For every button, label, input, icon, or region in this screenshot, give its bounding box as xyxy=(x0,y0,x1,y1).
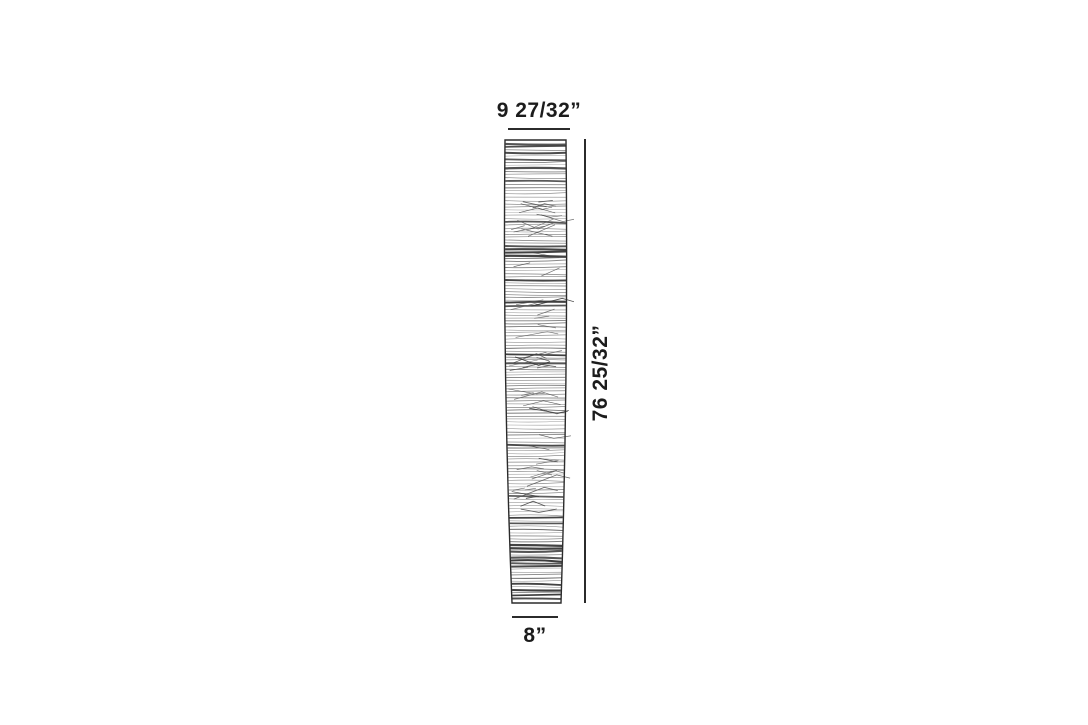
lamp-texture-stroke xyxy=(511,563,561,564)
lamp-texture-stroke xyxy=(506,153,566,154)
lamp-texture-stroke xyxy=(508,459,564,461)
lamp-texture-stroke xyxy=(505,222,566,224)
lamp-texture-stroke xyxy=(506,385,565,386)
lamp-texture-stroke xyxy=(505,292,566,293)
lamp-texture-stroke xyxy=(506,326,566,327)
lamp-texture-stroke xyxy=(505,315,566,316)
lamp-texture-stroke xyxy=(507,432,564,433)
top-width-label: 9 27/32” xyxy=(459,99,619,123)
lamp-texture-stroke xyxy=(505,257,566,258)
lamp-texture-stroke xyxy=(505,168,565,169)
lamp-texture-stroke xyxy=(512,587,561,588)
lamp-texture-stroke xyxy=(507,394,566,395)
lamp-texture-stroke xyxy=(506,374,565,375)
lamp-texture-stroke xyxy=(507,419,565,420)
lamp-texture-stroke xyxy=(508,455,564,456)
lamp-texture-stroke xyxy=(511,568,561,569)
lamp-texture-stroke xyxy=(514,263,531,267)
lamp-texture-stroke xyxy=(507,406,565,407)
lamp-texture-stroke xyxy=(505,249,566,250)
lamp-texture-stroke xyxy=(505,178,565,179)
floor-lamp-illustration xyxy=(498,136,574,608)
lamp-texture-stroke xyxy=(505,201,566,202)
lamp-texture-stroke xyxy=(508,450,565,451)
lamp-texture-stroke xyxy=(505,306,566,307)
lamp-texture-stroke xyxy=(505,155,565,156)
lamp-texture-stroke xyxy=(510,545,562,546)
lamp-texture-stroke xyxy=(507,404,565,405)
lamp-texture-stroke xyxy=(510,521,563,522)
lamp-texture-stroke xyxy=(505,276,566,277)
height-label: 76 25/32” xyxy=(588,303,614,443)
lamp-texture-stroke xyxy=(505,256,566,257)
lamp-texture-stroke xyxy=(506,332,566,333)
dimension-diagram: 9 27/32” 76 25/32” 8” xyxy=(0,0,1088,725)
lamp-texture-stroke xyxy=(505,300,566,301)
lamp-texture-stroke xyxy=(510,526,563,527)
lamp-texture-stroke xyxy=(505,181,566,182)
lamp-texture-stroke xyxy=(505,193,566,194)
lamp-texture-stroke xyxy=(506,323,566,324)
lamp-texture-stroke xyxy=(505,312,566,313)
lamp-texture-stroke xyxy=(506,330,566,331)
lamp-texture-stroke xyxy=(506,383,565,384)
lamp-texture-stroke xyxy=(512,578,562,579)
lamp-texture-stroke xyxy=(505,269,566,270)
lamp-texture-stroke xyxy=(506,338,566,339)
lamp-texture-stroke xyxy=(507,442,564,443)
lamp-texture-stroke xyxy=(505,295,566,296)
lamp-texture-stroke xyxy=(505,283,566,284)
lamp-texture-stroke xyxy=(506,144,566,145)
lamp-texture-stroke xyxy=(507,400,565,401)
lamp-texture-stroke xyxy=(509,505,563,506)
lamp-texture-stroke xyxy=(505,240,566,241)
lamp-texture-stroke xyxy=(505,264,566,265)
lamp-texture-stroke xyxy=(512,595,560,596)
lamp-texture-stroke xyxy=(506,391,565,392)
lamp-texture-stroke xyxy=(505,234,566,235)
lamp-texture-stroke xyxy=(505,297,566,298)
lamp-texture-stroke xyxy=(512,574,562,575)
lamp-texture-stroke xyxy=(507,429,564,430)
lamp-texture-stroke xyxy=(512,584,561,585)
top-width-dim-line xyxy=(508,128,570,130)
lamp-texture-stroke xyxy=(509,515,563,516)
height-dim-line xyxy=(584,139,586,603)
lamp-texture-stroke xyxy=(508,480,563,481)
lamp-texture-stroke xyxy=(505,164,565,165)
lamp-texture-stroke xyxy=(511,555,562,556)
lamp-texture-stroke xyxy=(507,421,565,422)
lamp-texture-stroke xyxy=(510,539,562,540)
bottom-width-dim-line xyxy=(512,616,558,618)
lamp-texture-stroke xyxy=(511,551,562,552)
lamp-texture-stroke xyxy=(511,557,562,558)
bottom-width-label: 8” xyxy=(475,624,595,648)
lamp-texture-stroke xyxy=(505,174,565,175)
lamp-texture-stroke xyxy=(506,367,566,368)
lamp-texture-stroke xyxy=(505,215,566,216)
lamp-texture-stroke xyxy=(510,529,563,530)
lamp-texture-stroke xyxy=(509,499,563,500)
lamp-texture-stroke xyxy=(508,469,564,470)
lamp-texture-stroke xyxy=(511,566,561,567)
lamp-texture-stroke xyxy=(505,209,566,210)
lamp-texture-stroke xyxy=(506,150,566,151)
lamp-texture-stroke xyxy=(510,517,563,518)
lamp-texture-stroke xyxy=(506,357,566,358)
lamp-texture-stroke xyxy=(506,335,566,336)
lamp-texture-stroke xyxy=(505,252,566,253)
lamp-texture-stroke xyxy=(505,280,566,281)
lamp-texture-stroke xyxy=(505,246,566,247)
lamp-texture-stroke xyxy=(506,342,566,343)
lamp-texture-stroke xyxy=(523,401,560,406)
lamp-texture-stroke xyxy=(508,453,565,454)
lamp-texture-stroke xyxy=(506,146,566,147)
lamp-texture-stroke xyxy=(512,580,561,581)
lamp-texture-stroke xyxy=(506,388,565,389)
lamp-texture-stroke xyxy=(510,532,562,533)
lamp-texture-stroke xyxy=(505,302,566,303)
lamp-texture-stroke xyxy=(505,162,565,163)
lamp-texture-stroke xyxy=(507,434,564,435)
lamp-texture-stroke xyxy=(512,590,561,591)
lamp-texture-stroke xyxy=(505,224,566,225)
lamp-texture-stroke xyxy=(505,260,566,261)
lamp-texture-stroke xyxy=(505,159,565,160)
lamp-texture-stroke xyxy=(508,445,565,446)
lamp-texture-stroke xyxy=(505,274,566,275)
lamp-texture-stroke xyxy=(505,289,566,290)
lamp-texture-stroke xyxy=(507,410,565,411)
lamp-texture-stroke xyxy=(511,560,562,562)
lamp-texture-stroke xyxy=(521,229,552,236)
lamp-texture-stroke xyxy=(512,592,561,593)
lamp-texture-stroke xyxy=(505,218,566,219)
lamp-texture-stroke xyxy=(506,359,566,360)
lamp-texture-stroke xyxy=(506,345,566,346)
